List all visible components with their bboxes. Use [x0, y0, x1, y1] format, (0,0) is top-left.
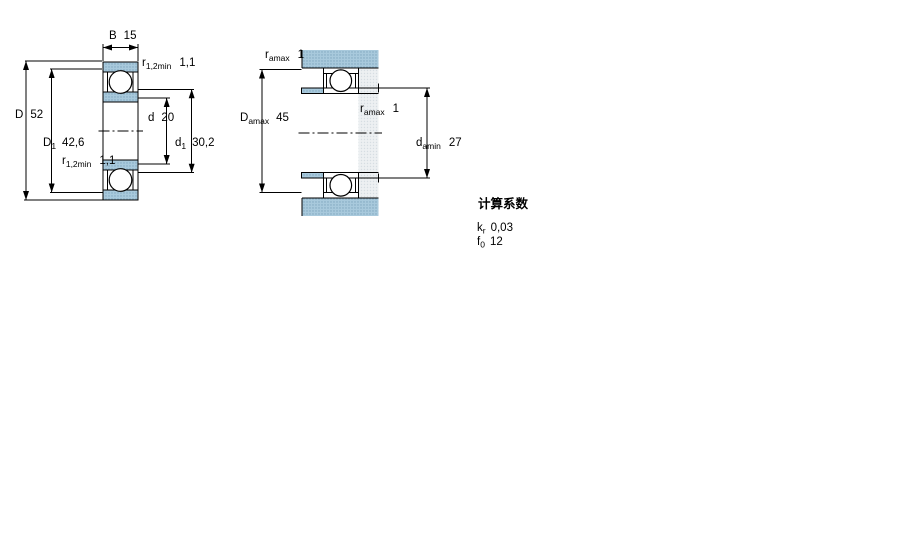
outer-diameter-label: D52 [15, 109, 43, 121]
housing-section-top [302, 50, 379, 68]
ball-top [330, 70, 352, 92]
bore-diameter-label: d20 [148, 112, 174, 124]
outer-diameter-dimension [24, 61, 104, 200]
width-dimension [103, 44, 138, 61]
chamfer-radius-bottom-label: r1,2min1,1 [62, 155, 115, 169]
f0-factor: f012 [477, 236, 503, 250]
chamfer-radius-top-label: r1,2min1,1 [142, 57, 195, 71]
drawing-page: B15 r1,2min1,1 D52 D142,6 r1,2min1,1 d20… [0, 0, 900, 560]
housing-shoulder-diameter-dimension [260, 70, 302, 193]
fillet-radius-top-label: ramax1 [265, 49, 304, 63]
housing-shoulder-diameter-label: Damax45 [240, 112, 289, 126]
ball-top [109, 71, 132, 94]
ball-bottom [330, 175, 352, 197]
shaft-shoulder-top [302, 88, 324, 94]
kr-factor: kr0,03 [477, 222, 513, 236]
housing-section-bottom [302, 198, 379, 216]
outer-ring-inner-diameter-dimension [50, 69, 103, 193]
bearing-front-section-view: B15 r1,2min1,1 D52 D142,6 r1,2min1,1 d20… [15, 30, 215, 200]
inner-ring-outer-diameter-label: d130,2 [175, 137, 215, 151]
shaft-shoulder-bottom [302, 173, 324, 179]
ball-bottom [109, 169, 132, 192]
calculation-factors-heading: 计算系数 [478, 196, 529, 211]
shaft-shoulder-diameter-label: damin27 [416, 137, 462, 151]
bearing-mounted-view: ramax1 Damax45 ramax1 damin27 [240, 49, 462, 216]
bore-diameter-dimension [139, 98, 171, 164]
width-dimension-label: B15 [109, 30, 136, 42]
calculation-factors: 计算系数 kr0,03 f012 [477, 196, 529, 250]
outer-ring-inner-diameter-label: D142,6 [43, 137, 84, 151]
